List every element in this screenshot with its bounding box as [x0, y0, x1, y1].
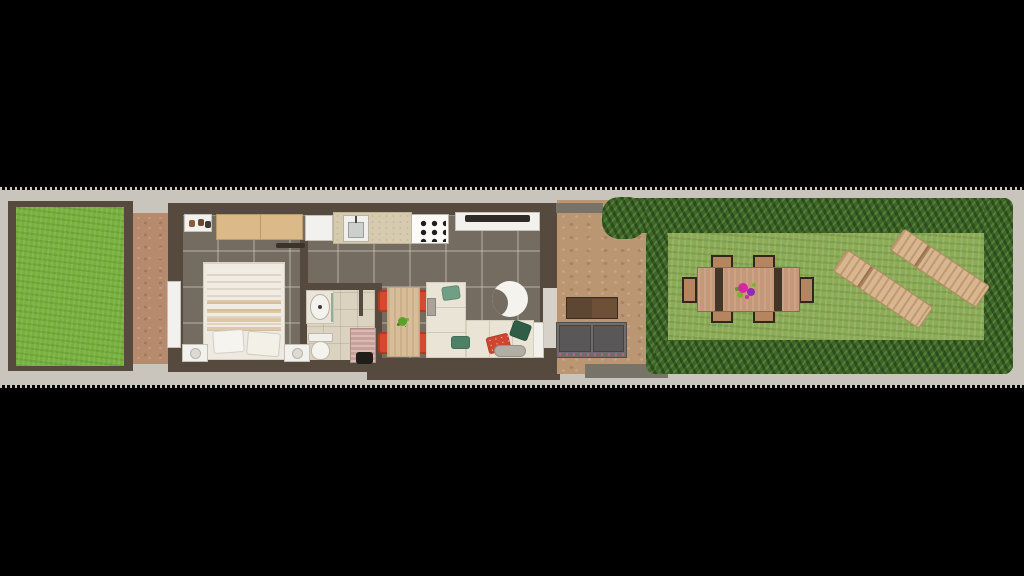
entry-path: [133, 213, 168, 364]
flower-centerpiece: [738, 283, 748, 293]
shower-partition-wall: [359, 290, 363, 316]
bedside-stool-left: [190, 348, 201, 359]
pillow-green-seat: [451, 336, 470, 349]
vanity-towel: [331, 293, 333, 322]
coffee-table-top-right: [592, 299, 617, 318]
patio-wall-stub-top: [556, 203, 603, 213]
bedside-mat-right: [284, 344, 310, 362]
vanity-faucet: [318, 305, 322, 309]
outdoor-sofa-cushion-right: [593, 325, 624, 352]
table-runner-right: [774, 268, 782, 311]
bathroom-vanity: [306, 290, 334, 324]
tv: [465, 215, 530, 222]
garden-chair-left: [682, 277, 697, 303]
kitchen-sink: [343, 215, 369, 242]
hedge-top: [606, 198, 1013, 233]
garden-dining-table: [697, 267, 800, 312]
wardrobe: [216, 214, 303, 240]
floor-plan-render: [0, 0, 1024, 576]
lounger-1-fold: [857, 266, 874, 288]
outdoor-sofa-cushion-left: [559, 325, 591, 352]
sofa-side-table: [427, 298, 436, 316]
patio-coffee-table: [566, 297, 618, 319]
bedside-mat-left: [182, 344, 208, 362]
wardrobe-divider: [260, 215, 261, 239]
hob-burners: [416, 218, 446, 242]
property-line-top: [0, 187, 1024, 190]
outdoor-sofa: [556, 322, 627, 358]
entrance-door: [167, 281, 181, 348]
shoes: [189, 220, 195, 227]
ottoman: [494, 345, 526, 357]
toilet-bowl: [311, 341, 330, 360]
bed-pillow-right: [246, 331, 281, 358]
bed-pillow-left: [212, 329, 245, 354]
sink-basin: [348, 222, 364, 238]
fridge: [305, 215, 333, 241]
bedside-stool-right: [292, 348, 303, 359]
radiator: [276, 243, 305, 248]
house-bottom-wall-step: [367, 370, 560, 380]
hedge-bottom: [655, 340, 1013, 374]
crescent-rug-cut: [492, 289, 508, 317]
crescent-rug: [492, 281, 528, 317]
dining-table-plant: [398, 317, 407, 326]
property-line-bottom: [0, 385, 1024, 388]
table-runner-left: [715, 268, 723, 311]
double-bed: [203, 262, 285, 360]
garden-chair-right: [799, 277, 814, 303]
bed-duvet-tan-stripes: [207, 300, 281, 331]
lounger-2-fold: [914, 245, 931, 267]
outdoor-sofa-trim: [559, 353, 624, 356]
shower-fixture: [356, 352, 373, 364]
pillow-green-top: [441, 285, 461, 301]
gas-hob: [411, 214, 449, 244]
sink-faucet: [355, 216, 357, 223]
front-lawn: [16, 207, 124, 366]
hedge-corner-bush: [602, 197, 646, 239]
shoe-mat: [184, 214, 212, 232]
toilet: [308, 333, 333, 361]
